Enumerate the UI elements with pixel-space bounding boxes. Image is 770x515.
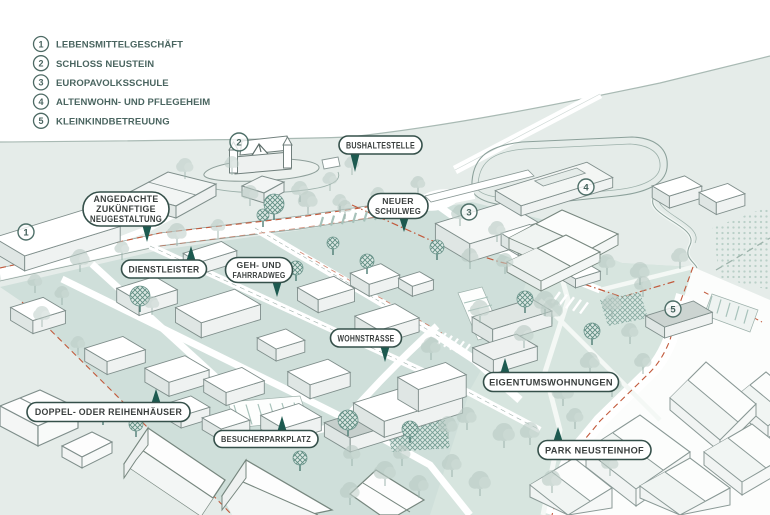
svg-text:EIGENTUMSWOHNUNGEN: EIGENTUMSWOHNUNGEN	[489, 377, 613, 387]
svg-text:NEUER: NEUER	[382, 196, 414, 206]
svg-text:1: 1	[23, 227, 29, 238]
svg-text:BESUCHERPARKPLATZ: BESUCHERPARKPLATZ	[221, 434, 311, 444]
svg-text:5: 5	[38, 116, 43, 126]
svg-text:DOPPEL- ODER REIHENHÄUSER: DOPPEL- ODER REIHENHÄUSER	[35, 407, 183, 417]
svg-text:GEH- UND: GEH- UND	[237, 260, 282, 270]
svg-text:1: 1	[38, 39, 43, 49]
svg-text:BUSHALTESTELLE: BUSHALTESTELLE	[346, 140, 415, 150]
svg-text:2: 2	[38, 59, 43, 69]
svg-text:ALTENWOHN- UND PFLEGEHEIM: ALTENWOHN- UND PFLEGEHEIM	[56, 97, 210, 108]
svg-text:FAHRRADWEG: FAHRRADWEG	[233, 270, 286, 280]
svg-text:EUROPAVOLKSSCHULE: EUROPAVOLKSSCHULE	[56, 78, 169, 89]
svg-text:2: 2	[236, 137, 241, 148]
svg-text:KLEINKINDBETREUUNG: KLEINKINDBETREUUNG	[56, 116, 170, 127]
svg-text:NEUGESTALTUNG: NEUGESTALTUNG	[90, 214, 162, 224]
svg-text:4: 4	[583, 182, 589, 193]
svg-text:3: 3	[38, 78, 43, 88]
svg-text:ZUKÜNFTIGE: ZUKÜNFTIGE	[96, 204, 156, 214]
svg-text:4: 4	[38, 97, 43, 107]
svg-text:SCHULWEG: SCHULWEG	[375, 206, 421, 216]
svg-text:DIENSTLEISTER: DIENSTLEISTER	[129, 264, 200, 274]
svg-text:3: 3	[466, 207, 471, 218]
svg-text:WOHNSTRASSE: WOHNSTRASSE	[338, 333, 395, 343]
svg-text:PARK NEUSTEINHOF: PARK NEUSTEINHOF	[545, 445, 644, 455]
svg-text:SCHLOSS NEUSTEIN: SCHLOSS NEUSTEIN	[56, 59, 154, 70]
svg-text:5: 5	[670, 304, 676, 315]
svg-text:LEBENSMITTELGESCHÄFT: LEBENSMITTELGESCHÄFT	[56, 40, 183, 51]
svg-text:ANGEDACHTE: ANGEDACHTE	[93, 194, 158, 204]
